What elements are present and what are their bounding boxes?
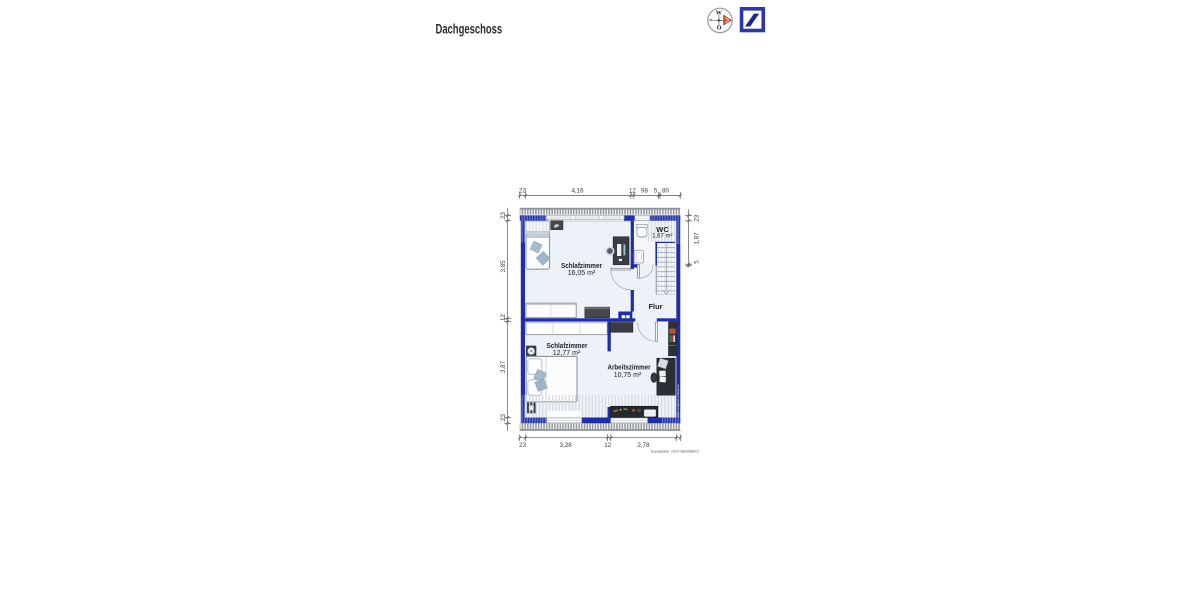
svg-text:W: W <box>716 10 723 17</box>
svg-text:98: 98 <box>641 187 648 194</box>
svg-text:1,67 m²: 1,67 m² <box>652 233 672 239</box>
svg-text:S: S <box>708 18 713 21</box>
svg-text:www.hausplaner-software.de: www.hausplaner-software.de <box>676 384 680 418</box>
svg-text:12: 12 <box>604 442 611 449</box>
svg-text:2,78: 2,78 <box>637 442 650 449</box>
svg-text:O: O <box>717 24 722 31</box>
svg-text:23: 23 <box>500 414 507 421</box>
svg-text:3,28: 3,28 <box>560 442 573 449</box>
svg-text:23: 23 <box>519 442 526 449</box>
svg-text:5: 5 <box>654 187 658 194</box>
svg-text:10,75 m²: 10,75 m² <box>614 372 642 379</box>
svg-text:23: 23 <box>693 214 700 221</box>
svg-text:12,77 m²: 12,77 m² <box>553 350 581 357</box>
svg-text:3,87: 3,87 <box>500 360 507 373</box>
svg-text:23: 23 <box>500 212 507 219</box>
svg-text:Flur: Flur <box>649 302 663 311</box>
svg-text:4,16: 4,16 <box>571 187 584 194</box>
svg-text:Exposéplan, nicht maßstäblich: Exposéplan, nicht maßstäblich <box>651 449 699 454</box>
svg-text:5: 5 <box>693 260 700 264</box>
svg-text:Arbeitszimmer: Arbeitszimmer <box>608 365 651 372</box>
svg-text:80: 80 <box>662 187 669 194</box>
svg-text:Schlafzimmer: Schlafzimmer <box>547 343 588 350</box>
svg-text:12: 12 <box>629 187 636 194</box>
svg-text:1,87: 1,87 <box>693 232 700 245</box>
svg-text:Dachgeschoss: Dachgeschoss <box>436 23 503 37</box>
svg-text:12: 12 <box>500 314 507 321</box>
svg-text:Schlafzimmer: Schlafzimmer <box>561 263 602 270</box>
svg-text:23: 23 <box>519 187 526 194</box>
svg-text:3,85: 3,85 <box>500 260 507 273</box>
svg-text:16,05 m²: 16,05 m² <box>568 270 596 277</box>
